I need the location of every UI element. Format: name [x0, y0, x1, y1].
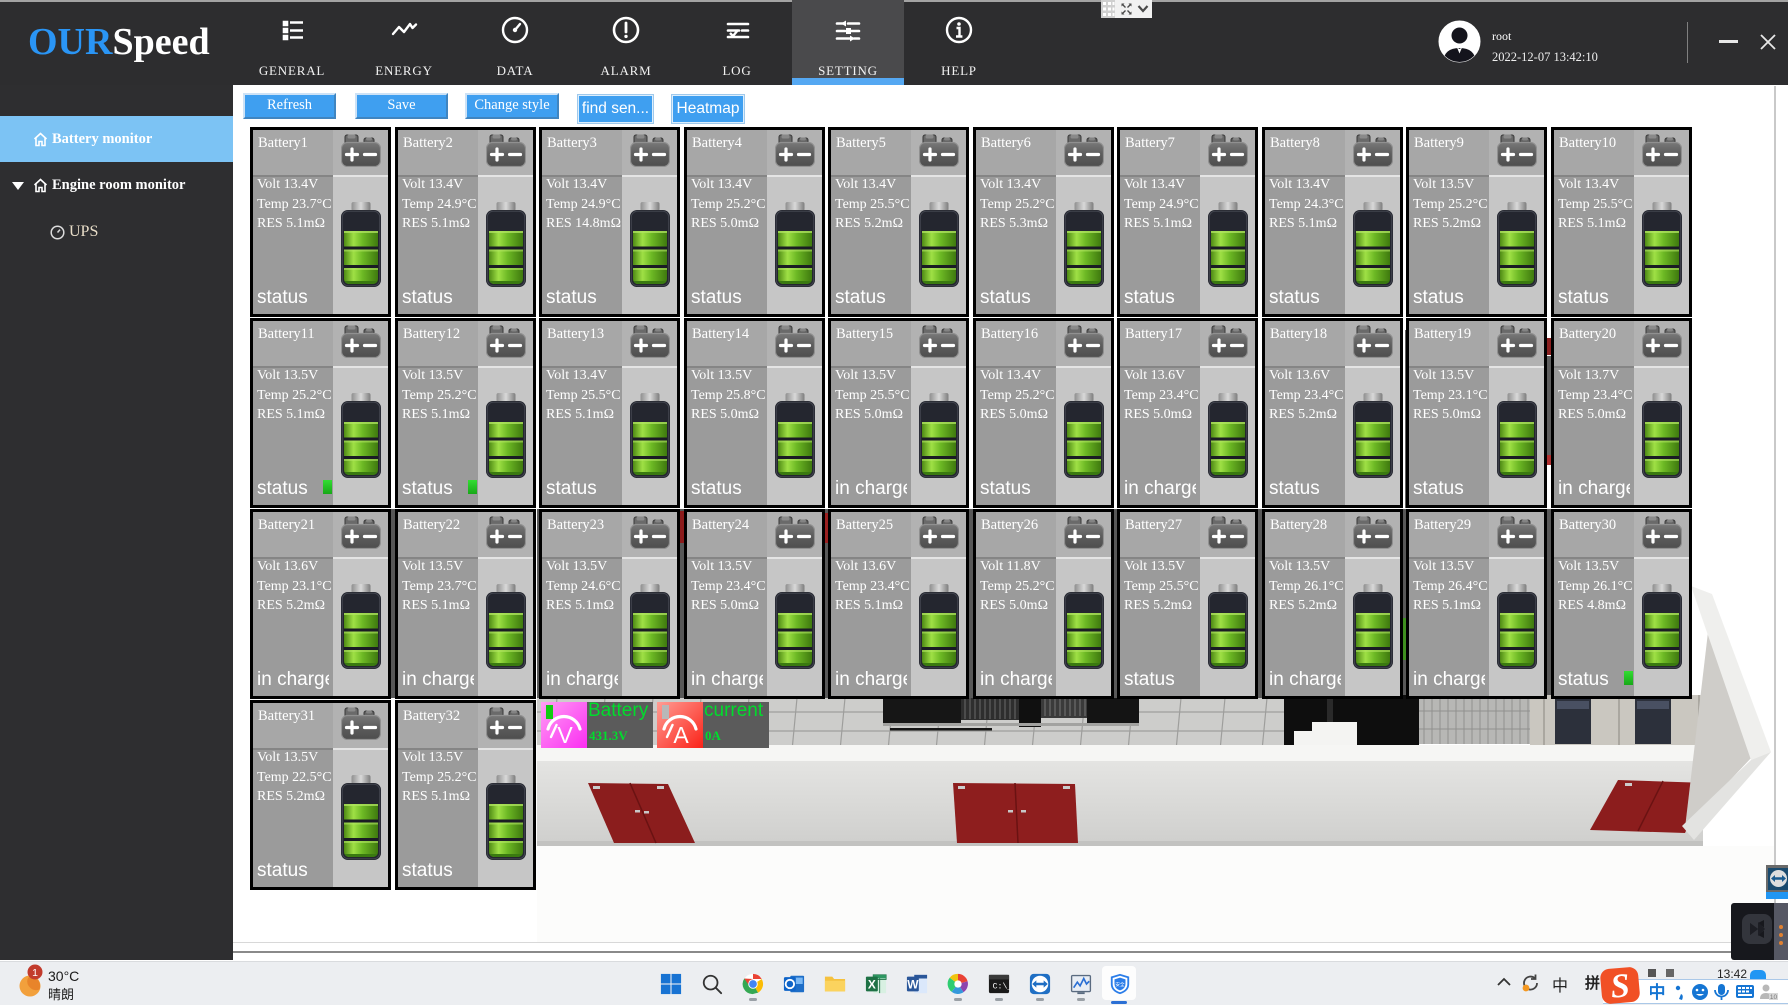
- svg-text:W: W: [907, 978, 919, 992]
- svg-text:X: X: [868, 978, 876, 992]
- svg-text:S: S: [1609, 967, 1631, 1005]
- svg-text:10: 10: [1770, 994, 1778, 1001]
- svg-text:中: 中: [1650, 982, 1666, 1002]
- svg-text:C:\_: C:\_: [993, 982, 1010, 992]
- svg-text:安全: 安全: [1115, 981, 1125, 988]
- svg-text:1: 1: [32, 967, 38, 979]
